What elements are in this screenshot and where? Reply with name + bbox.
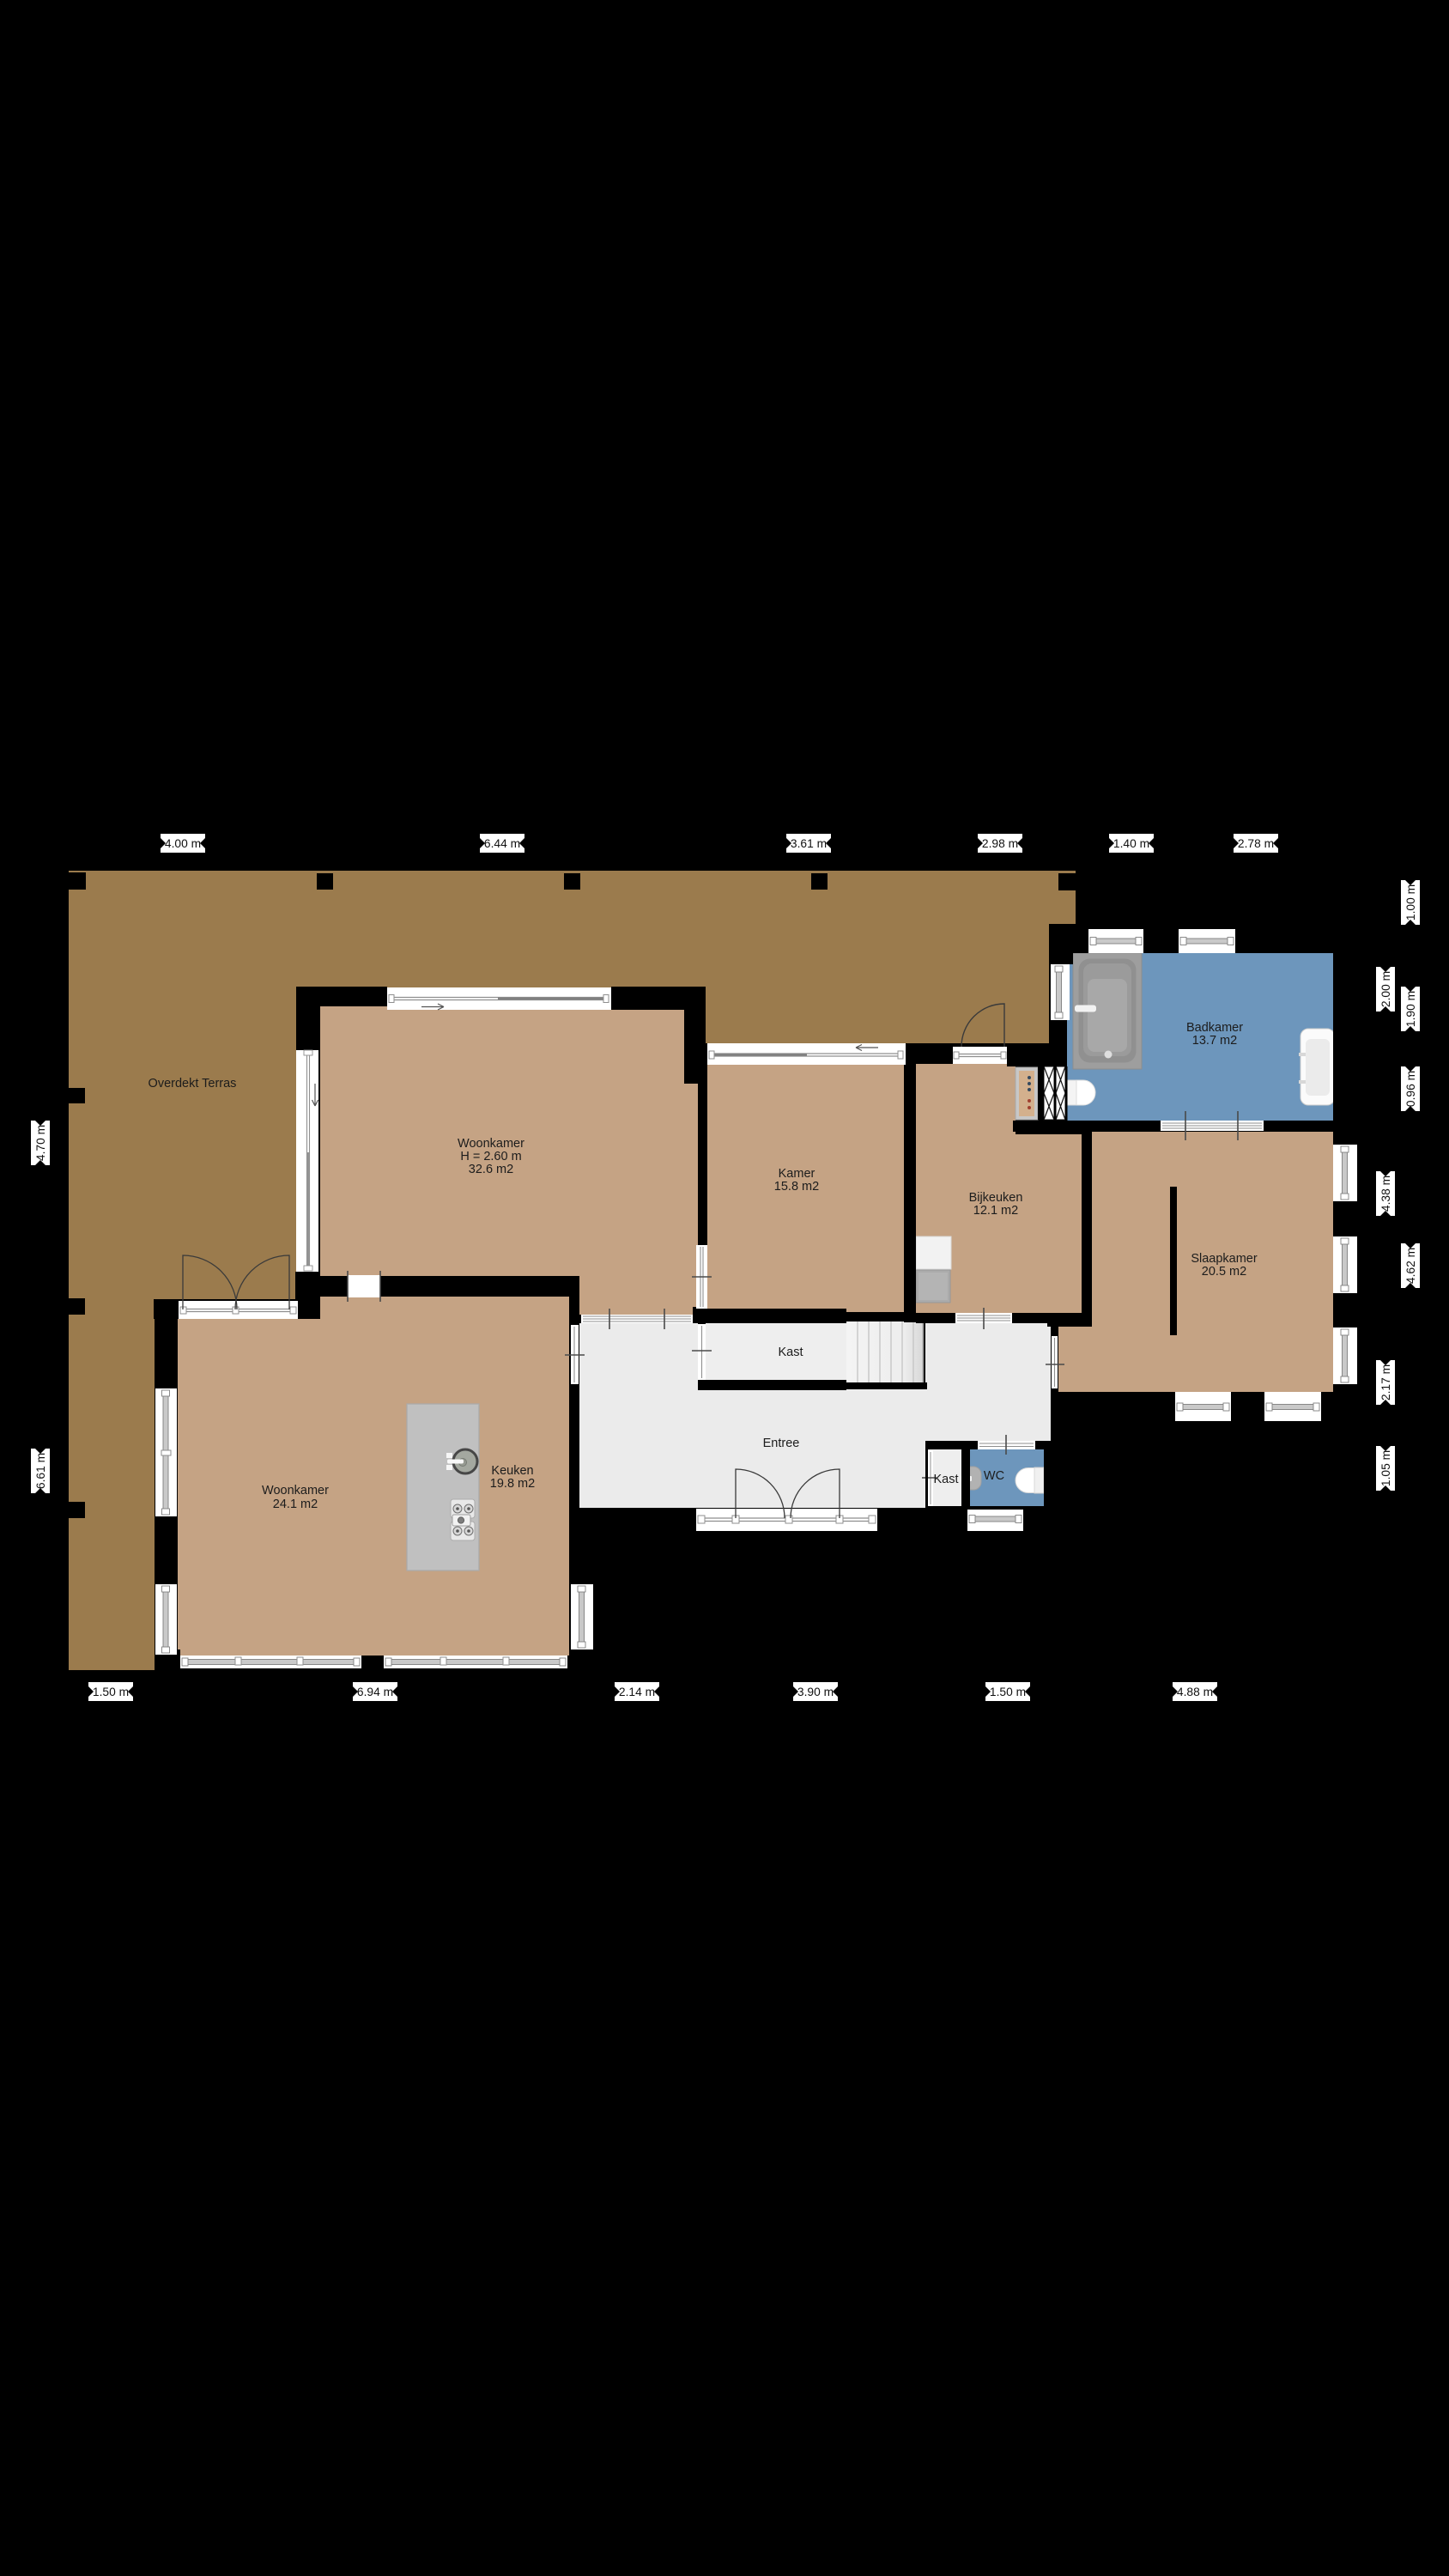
svg-text:Bijkeuken: Bijkeuken bbox=[969, 1191, 1023, 1205]
svg-text:1.05 m: 1.05 m bbox=[1379, 1450, 1392, 1486]
svg-text:3.61 m: 3.61 m bbox=[791, 837, 827, 850]
svg-text:Badkamer: Badkamer bbox=[1186, 1021, 1243, 1035]
svg-text:Overdekt Terras: Overdekt Terras bbox=[149, 1077, 237, 1091]
svg-text:0.96 m: 0.96 m bbox=[1404, 1071, 1417, 1107]
svg-text:6.94 m: 6.94 m bbox=[357, 1686, 393, 1698]
svg-text:1.50 m: 1.50 m bbox=[990, 1686, 1026, 1698]
svg-text:1.90 m: 1.90 m bbox=[1404, 991, 1417, 1027]
svg-text:H = 2.60 m: H = 2.60 m bbox=[460, 1150, 521, 1163]
svg-text:3.90 m: 3.90 m bbox=[797, 1686, 834, 1698]
svg-text:2.98 m: 2.98 m bbox=[982, 837, 1018, 850]
svg-text:19.8 m2: 19.8 m2 bbox=[490, 1477, 535, 1491]
svg-text:1.00 m: 1.00 m bbox=[1404, 884, 1417, 920]
svg-text:Kast: Kast bbox=[933, 1473, 958, 1486]
svg-text:Woonkamer: Woonkamer bbox=[262, 1484, 329, 1498]
svg-text:Entree: Entree bbox=[763, 1437, 800, 1450]
svg-text:15.8 m2: 15.8 m2 bbox=[774, 1180, 819, 1194]
svg-text:4.88 m: 4.88 m bbox=[1177, 1686, 1213, 1698]
svg-text:4.62 m: 4.62 m bbox=[1404, 1248, 1417, 1284]
svg-text:2.78 m: 2.78 m bbox=[1238, 837, 1274, 850]
svg-text:4.70 m: 4.70 m bbox=[34, 1125, 47, 1161]
svg-text:Slaapkamer: Slaapkamer bbox=[1191, 1252, 1258, 1266]
svg-text:4.38 m: 4.38 m bbox=[1379, 1176, 1392, 1212]
svg-text:1.40 m: 1.40 m bbox=[1113, 837, 1149, 850]
svg-text:12.1 m2: 12.1 m2 bbox=[973, 1204, 1018, 1218]
svg-text:1.50 m: 1.50 m bbox=[93, 1686, 129, 1698]
svg-text:32.6 m2: 32.6 m2 bbox=[469, 1163, 513, 1176]
svg-text:4.00 m: 4.00 m bbox=[165, 837, 201, 850]
svg-text:20.5 m2: 20.5 m2 bbox=[1202, 1265, 1246, 1279]
svg-text:13.7 m2: 13.7 m2 bbox=[1192, 1034, 1237, 1048]
svg-text:6.44 m: 6.44 m bbox=[484, 837, 520, 850]
svg-text:2.14 m: 2.14 m bbox=[619, 1686, 655, 1698]
svg-text:WC: WC bbox=[984, 1469, 1004, 1483]
svg-text:2.17 m: 2.17 m bbox=[1379, 1364, 1392, 1400]
svg-text:Keuken: Keuken bbox=[491, 1464, 533, 1478]
svg-text:Kast: Kast bbox=[778, 1346, 803, 1359]
svg-text:Woonkamer: Woonkamer bbox=[458, 1137, 524, 1151]
svg-text:24.1 m2: 24.1 m2 bbox=[273, 1498, 318, 1511]
svg-text:2.00 m: 2.00 m bbox=[1379, 971, 1392, 1007]
svg-text:6.61 m: 6.61 m bbox=[34, 1453, 47, 1489]
svg-text:Kamer: Kamer bbox=[779, 1167, 815, 1181]
